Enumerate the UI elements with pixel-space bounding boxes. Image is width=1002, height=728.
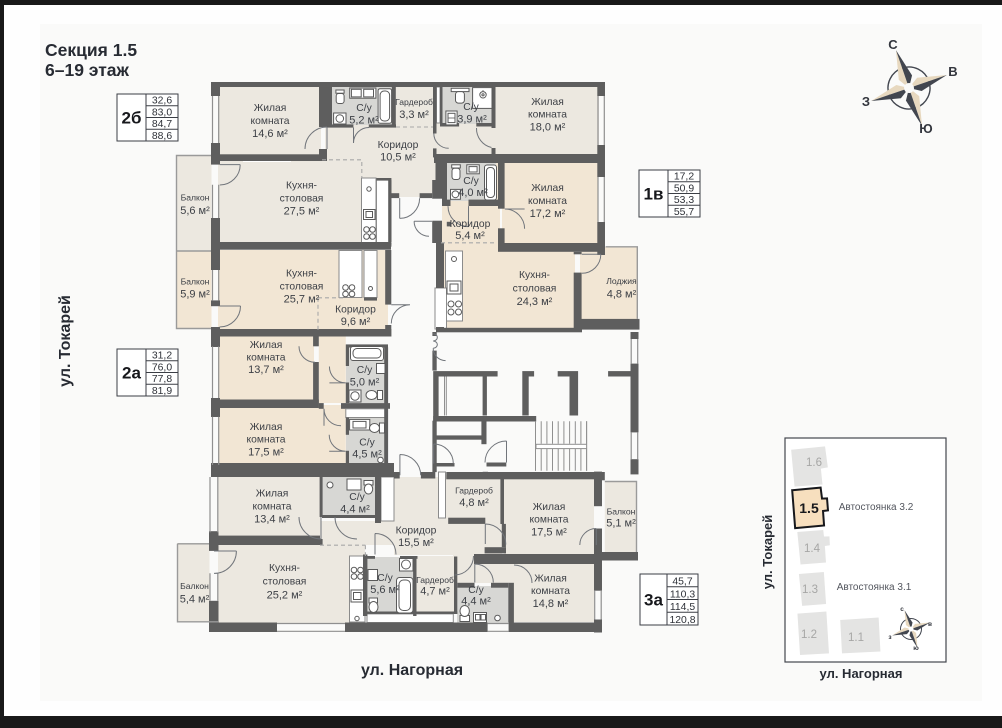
svg-text:комната: комната [528,110,567,121]
svg-text:комната: комната [251,116,290,127]
svg-text:комната: комната [253,502,292,513]
svg-text:в: в [928,621,932,628]
svg-text:С/у: С/у [356,103,372,114]
svg-text:4,4 м²: 4,4 м² [340,504,370,516]
svg-text:2б: 2б [122,109,142,128]
svg-text:С/у: С/у [463,102,479,113]
svg-text:3,3 м²: 3,3 м² [399,109,429,121]
svg-text:Секция 1.5: Секция 1.5 [45,40,137,60]
svg-text:4,0 м²: 4,0 м² [458,187,488,199]
svg-text:В: В [948,64,957,79]
svg-text:14,6 м²: 14,6 м² [252,128,288,140]
svg-text:1.4: 1.4 [804,543,821,555]
svg-text:5,0 м²: 5,0 м² [350,377,380,389]
svg-text:Коридор: Коридор [335,305,376,316]
svg-text:Балкон: Балкон [181,193,210,203]
svg-text:1.2: 1.2 [801,629,817,641]
svg-text:53,3: 53,3 [674,195,694,206]
svg-text:83,0: 83,0 [152,107,172,118]
svg-text:Коридор: Коридор [396,526,437,537]
svg-text:9,6 м²: 9,6 м² [341,316,371,328]
svg-text:ул. Токарей: ул. Токарей [760,515,775,590]
svg-text:1.6: 1.6 [806,457,822,469]
svg-text:комната: комната [247,353,286,364]
svg-text:4,7 м²: 4,7 м² [420,586,450,598]
svg-text:25,2 м²: 25,2 м² [267,590,303,602]
svg-text:1.1: 1.1 [848,632,864,644]
svg-text:50,9: 50,9 [674,183,694,194]
svg-text:Автостоянка 3.2: Автостоянка 3.2 [839,502,914,513]
svg-text:10,5 м²: 10,5 м² [380,152,416,164]
svg-text:С/у: С/у [377,573,393,584]
svg-text:Гардероб: Гардероб [455,486,493,496]
svg-text:5,4 м²: 5,4 м² [180,594,210,606]
svg-text:5,1 м²: 5,1 м² [606,518,636,530]
svg-text:С/у: С/у [468,585,484,596]
svg-text:3а: 3а [644,591,663,610]
svg-text:84,7: 84,7 [152,119,172,130]
svg-text:76,0: 76,0 [152,362,172,373]
svg-text:114,5: 114,5 [670,602,695,613]
svg-text:Балкон: Балкон [180,581,209,591]
svg-text:81,9: 81,9 [152,386,172,397]
svg-text:С: С [888,37,898,52]
svg-text:17,5 м²: 17,5 м² [248,447,284,459]
svg-text:14,8 м²: 14,8 м² [533,598,569,610]
svg-text:17,2: 17,2 [674,172,694,183]
svg-text:55,7: 55,7 [674,207,694,218]
svg-text:С/у: С/у [357,365,373,376]
svg-text:Жилая: Жилая [533,502,566,513]
svg-text:5,6 м²: 5,6 м² [180,205,210,217]
svg-text:Балкон: Балкон [181,277,210,287]
svg-text:столовая: столовая [280,194,324,205]
svg-text:Жилая: Жилая [250,422,283,433]
svg-text:1в: 1в [644,185,664,204]
svg-text:комната: комната [247,435,286,446]
svg-text:120,8: 120,8 [669,615,695,626]
svg-text:45,7: 45,7 [672,577,692,588]
svg-text:комната: комната [531,586,570,597]
svg-text:ю: ю [913,645,919,652]
svg-text:ул. Нагорная: ул. Нагорная [361,662,463,679]
svg-text:88,6: 88,6 [152,131,172,142]
svg-text:1.3: 1.3 [802,584,818,596]
svg-text:Коридор: Коридор [450,219,491,230]
svg-text:столовая: столовая [513,284,557,295]
svg-text:31,2: 31,2 [152,351,172,362]
svg-text:ул. Нагорная: ул. Нагорная [820,666,903,681]
svg-text:ул. Токарей: ул. Токарей [57,295,74,387]
svg-text:13,4 м²: 13,4 м² [254,514,290,526]
svg-text:Балкон: Балкон [607,507,636,517]
svg-text:З: З [862,94,870,109]
svg-text:Жилая: Жилая [534,574,567,585]
svg-text:Жилая: Жилая [254,103,287,114]
svg-text:24,3 м²: 24,3 м² [517,296,553,308]
svg-text:15,5 м²: 15,5 м² [398,537,434,549]
svg-text:С/у: С/у [463,176,479,187]
svg-text:4,8 м²: 4,8 м² [607,289,637,301]
svg-text:25,7 м²: 25,7 м² [284,294,320,306]
svg-text:Автостоянка 3.1: Автостоянка 3.1 [837,582,912,593]
svg-text:столовая: столовая [280,282,324,293]
svg-text:Ю: Ю [919,121,932,136]
svg-text:110,3: 110,3 [670,589,695,600]
svg-text:Жилая: Жилая [531,183,564,194]
svg-text:4,5 м²: 4,5 м² [352,449,382,461]
svg-text:комната: комната [530,515,569,526]
svg-text:32,6: 32,6 [152,96,172,107]
svg-text:17,2 м²: 17,2 м² [530,208,566,220]
svg-text:5,2 м²: 5,2 м² [349,115,379,127]
svg-text:Кухня-: Кухня- [286,181,317,192]
svg-text:3,9 м²: 3,9 м² [457,114,487,126]
svg-text:С/у: С/у [359,438,375,449]
svg-text:77,8: 77,8 [152,374,172,385]
svg-text:Лоджия: Лоджия [606,276,637,286]
svg-text:Жилая: Жилая [256,489,289,500]
svg-text:Жилая: Жилая [250,340,283,351]
svg-text:2а: 2а [122,364,141,383]
svg-text:Кухня-: Кухня- [519,270,550,281]
svg-text:с: с [900,606,904,613]
svg-text:27,5 м²: 27,5 м² [284,206,320,218]
svg-text:4,8 м²: 4,8 м² [459,497,489,509]
svg-text:Гардероб: Гардероб [395,97,433,107]
svg-text:Коридор: Коридор [378,140,419,151]
svg-text:Гардероб: Гардероб [416,575,454,585]
svg-text:13,7 м²: 13,7 м² [248,364,284,376]
svg-text:4,4 м²: 4,4 м² [461,596,491,608]
svg-text:столовая: столовая [263,577,307,588]
svg-text:18,0 м²: 18,0 м² [530,122,566,134]
svg-text:6–19 этаж: 6–19 этаж [45,60,130,80]
svg-text:Кухня-: Кухня- [269,563,300,574]
svg-text:С/у: С/у [349,492,365,503]
svg-text:5,6 м²: 5,6 м² [370,584,400,596]
svg-text:комната: комната [528,196,567,207]
svg-text:17,5 м²: 17,5 м² [531,527,567,539]
svg-text:1.5: 1.5 [799,500,819,516]
svg-text:5,9 м²: 5,9 м² [180,289,210,301]
svg-text:5,4 м²: 5,4 м² [455,230,485,242]
svg-text:Кухня-: Кухня- [286,269,317,280]
svg-text:Жилая: Жилая [531,97,564,108]
